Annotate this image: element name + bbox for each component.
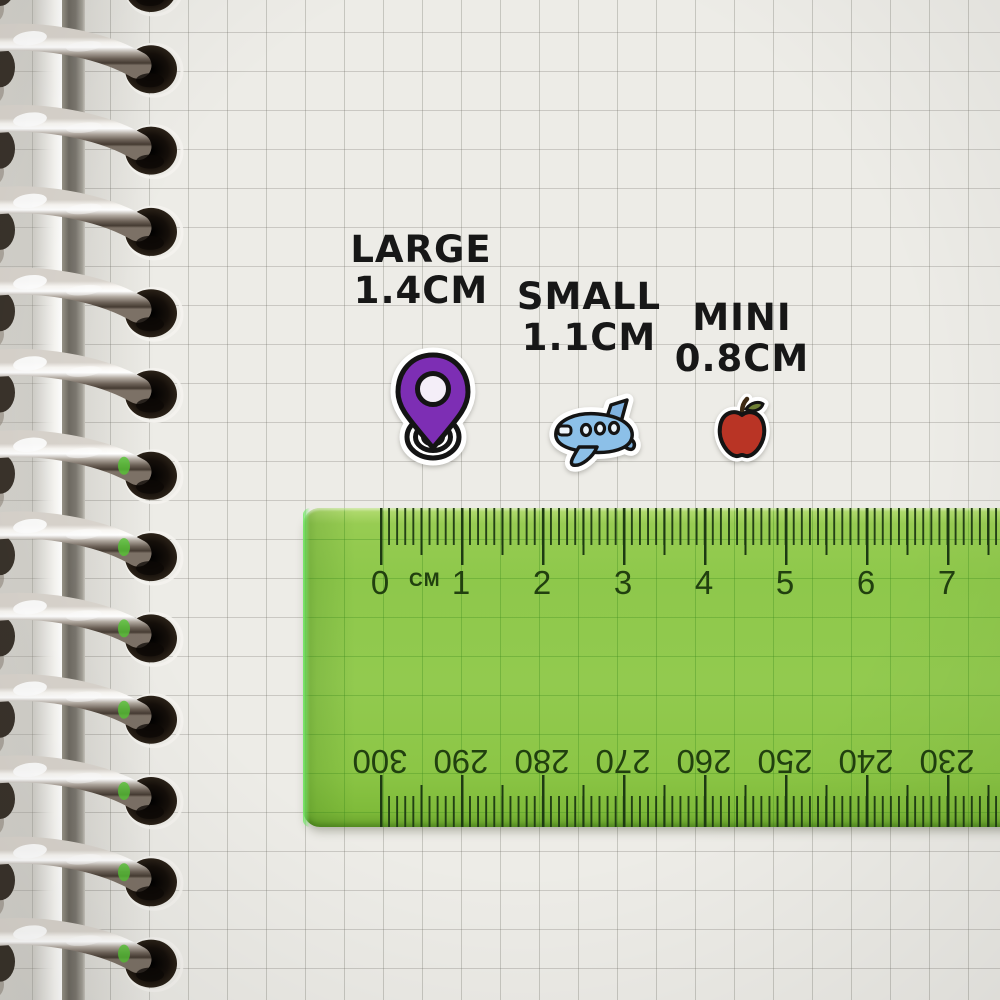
ruler-top-number: 0 — [371, 566, 389, 599]
spiral-ring — [0, 436, 182, 511]
label-small-size: 1.1CM — [517, 317, 661, 358]
apple-icon — [712, 395, 772, 463]
spiral-ring — [0, 598, 182, 673]
spiral-ring — [0, 273, 182, 348]
ruler-bottom-number: 240 — [838, 745, 893, 778]
ruler: CM 01234567300290280270260250240230 — [303, 508, 1000, 827]
ruler-unit-label: CM — [409, 570, 441, 592]
label-mini: MINI 0.8CM — [675, 297, 810, 379]
spiral-ring — [0, 842, 182, 917]
spiral-binding — [0, 0, 230, 1000]
ruler-top-number: 5 — [776, 566, 794, 599]
ruler-top-number: 7 — [938, 566, 956, 599]
spiral-ring — [0, 192, 182, 267]
airplane-icon — [545, 397, 643, 469]
label-small-name: SMALL — [517, 276, 661, 317]
spiral-ring — [0, 354, 182, 429]
ruler-bottom-number: 250 — [757, 745, 812, 778]
ruler-top-ticks — [380, 508, 1000, 568]
spiral-ring — [0, 0, 182, 23]
spiral-ring — [0, 761, 182, 836]
ruler-bottom-number: 260 — [676, 745, 731, 778]
ruler-bottom-number: 270 — [595, 745, 650, 778]
spiral-ring — [0, 29, 182, 104]
label-large-size: 1.4CM — [350, 270, 491, 311]
spiral-ring — [0, 517, 182, 592]
label-small: SMALL 1.1CM — [517, 276, 661, 358]
ruler-top-number: 1 — [452, 566, 470, 599]
ruler-bottom-number: 230 — [919, 745, 974, 778]
label-mini-size: 0.8CM — [675, 338, 810, 379]
ruler-bottom-number: 280 — [514, 745, 569, 778]
spiral-ring — [0, 680, 182, 755]
ruler-top-number: 4 — [695, 566, 713, 599]
notebook-photo: LARGE 1.4CM SMALL 1.1CM MINI 0.8CM — [0, 0, 1000, 1000]
label-large: LARGE 1.4CM — [350, 229, 491, 311]
label-large-name: LARGE — [350, 229, 491, 270]
spiral-ring — [0, 111, 182, 186]
ruler-top-number: 2 — [533, 566, 551, 599]
ruler-bottom-number: 290 — [433, 745, 488, 778]
location-pin-icon — [383, 343, 484, 465]
ruler-top-number: 6 — [857, 566, 875, 599]
ruler-bottom-number: 300 — [352, 745, 407, 778]
label-mini-name: MINI — [675, 297, 810, 338]
ruler-top-number: 3 — [614, 566, 632, 599]
spiral-ring — [0, 924, 182, 999]
